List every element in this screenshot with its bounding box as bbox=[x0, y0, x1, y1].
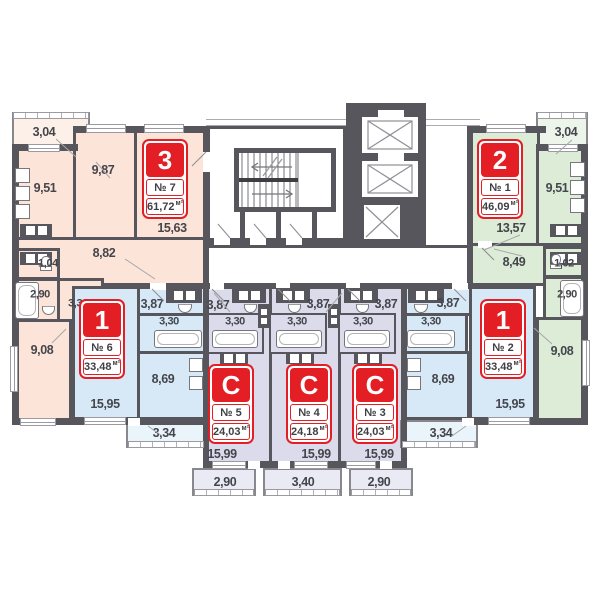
kitchen-counter-icon bbox=[407, 358, 421, 372]
area-label: 3,87 bbox=[437, 297, 460, 310]
window bbox=[294, 461, 328, 469]
area-label: 15,99 bbox=[301, 448, 330, 461]
elevator-shaft-2 bbox=[362, 161, 418, 197]
unit-badge-3: С № 3 24,03м² bbox=[352, 364, 398, 444]
unit-number: № 4 bbox=[290, 404, 328, 421]
unit-area-value: 24,03 bbox=[213, 426, 241, 438]
bathtub-icon bbox=[154, 330, 202, 348]
area-label: 3,40 bbox=[292, 476, 315, 489]
area-label: 3,04 bbox=[555, 126, 578, 139]
kitchen-counter-icon bbox=[189, 358, 203, 372]
vestibule-divider bbox=[312, 212, 317, 238]
balcony-glazing bbox=[351, 489, 411, 496]
unit-badge-1: 2 № 1 46,09м² bbox=[477, 139, 523, 219]
area-label: 3,30 bbox=[353, 317, 373, 328]
washer-icon bbox=[220, 352, 248, 364]
unit-badge-4: С № 4 24,18м² bbox=[286, 364, 332, 444]
area-label: 8,82 bbox=[93, 247, 116, 260]
area-label: 3,34 bbox=[153, 427, 176, 440]
window bbox=[28, 144, 60, 152]
area-label: 3,87 bbox=[307, 298, 330, 311]
elevator-shaft-3 bbox=[364, 205, 400, 239]
vestibule-divider bbox=[240, 212, 245, 238]
window bbox=[212, 461, 246, 469]
stove-icon bbox=[570, 198, 585, 213]
door-gap bbox=[214, 238, 230, 245]
bathtub-icon bbox=[276, 330, 322, 348]
unit-area-unit: м² bbox=[176, 200, 184, 207]
kitchen-sink-icon bbox=[570, 162, 585, 177]
balcony-glazing bbox=[128, 441, 204, 448]
window bbox=[84, 417, 126, 425]
balcony-door-gap bbox=[278, 461, 290, 469]
wardrobe-icon bbox=[276, 288, 310, 303]
balcony-glazing bbox=[537, 112, 587, 119]
studio5-entrance-gap bbox=[210, 283, 224, 290]
apt1-entrance-gap bbox=[478, 241, 492, 248]
balcony-door-gap bbox=[248, 461, 260, 469]
area-label: 15,99 bbox=[207, 448, 236, 461]
area-label: 8,69 bbox=[152, 373, 175, 386]
door-gap bbox=[250, 238, 266, 245]
unit-area: 33,48м² bbox=[83, 358, 121, 375]
unit-badge-2: 1 № 2 33,48м² bbox=[480, 299, 526, 379]
unit-type: 3 bbox=[146, 143, 184, 177]
cabinet-icon bbox=[550, 224, 582, 237]
area-label: 9,51 bbox=[34, 182, 57, 195]
door-gap bbox=[286, 238, 302, 245]
area-label: 3,30 bbox=[225, 317, 245, 328]
unit-area-value: 24,18 bbox=[291, 426, 319, 438]
area-label: 1,02 bbox=[554, 259, 574, 270]
area-label: 15,99 bbox=[364, 448, 393, 461]
apt2-entrance-gap bbox=[452, 283, 468, 290]
window bbox=[86, 124, 126, 133]
unit-area-value: 24,03 bbox=[357, 426, 385, 438]
unit-type: 2 bbox=[481, 143, 519, 177]
area-label: 3,30 bbox=[421, 317, 441, 328]
unit-area: 61,72м² bbox=[146, 198, 184, 215]
unit-area-unit: м² bbox=[514, 360, 522, 367]
cabinet-icon bbox=[20, 224, 52, 237]
unit-area: 24,03м² bbox=[356, 423, 394, 440]
canopy-edge-right bbox=[426, 119, 480, 126]
unit-area-unit: м² bbox=[242, 425, 250, 432]
unit-area-unit: м² bbox=[511, 200, 519, 207]
balcony-glazing bbox=[13, 112, 89, 119]
area-label: 2,90 bbox=[214, 476, 237, 489]
washer-icon bbox=[354, 352, 382, 364]
area-label: 2,90 bbox=[368, 476, 391, 489]
area-label: 9,87 bbox=[92, 164, 115, 177]
window bbox=[20, 418, 56, 426]
room-908-left bbox=[12, 319, 72, 425]
stove-icon bbox=[407, 376, 421, 390]
apt7-entrance-gap bbox=[203, 152, 210, 172]
window bbox=[346, 461, 376, 469]
balcony-glazing bbox=[265, 489, 340, 496]
area-label: 3,87 bbox=[207, 299, 230, 312]
unit-area-value: 61,72 bbox=[147, 201, 175, 213]
area-label: 9,08 bbox=[31, 344, 54, 357]
balcony-door-gap bbox=[128, 418, 140, 426]
area-label: 15,95 bbox=[495, 398, 524, 411]
unit-badge-7: 3 № 7 61,72м² bbox=[142, 139, 188, 219]
elevator-door-gap bbox=[378, 153, 404, 161]
party-wall bbox=[467, 126, 473, 246]
unit-area: 33,48м² bbox=[484, 358, 522, 375]
window bbox=[486, 124, 526, 133]
area-label: 3,87 bbox=[141, 298, 164, 311]
balcony-door-gap bbox=[462, 418, 474, 426]
area-label: 2,90 bbox=[30, 290, 50, 301]
stove-icon bbox=[189, 376, 203, 390]
area-label: 3,34 bbox=[430, 427, 453, 440]
balcony-glazing bbox=[402, 441, 476, 448]
unit-area-unit: м² bbox=[386, 425, 394, 432]
area-label: 9,51 bbox=[546, 182, 569, 195]
unit-number: № 3 bbox=[356, 404, 394, 421]
area-label: 3,04 bbox=[33, 126, 56, 139]
unit-type: 1 bbox=[83, 303, 121, 337]
window bbox=[10, 346, 18, 392]
unit-area-value: 33,48 bbox=[84, 361, 112, 373]
area-label: 8,69 bbox=[432, 373, 455, 386]
unit-number: № 2 bbox=[484, 339, 522, 356]
unit-area-value: 33,48 bbox=[485, 361, 513, 373]
window bbox=[582, 340, 590, 386]
washer-icon bbox=[286, 352, 314, 364]
unit-number: № 7 bbox=[146, 179, 184, 196]
unit-number: № 6 bbox=[83, 339, 121, 356]
area-label: 3,30 bbox=[159, 317, 179, 328]
riser-shaft bbox=[328, 304, 340, 328]
unit-area: 24,18м² bbox=[290, 423, 328, 440]
apt6-entrance-gap bbox=[150, 283, 166, 290]
window bbox=[488, 417, 530, 425]
unit-area: 24,03м² bbox=[212, 423, 250, 440]
unit-badge-5: С № 5 24,03м² bbox=[208, 364, 254, 444]
kitchen-counter-icon bbox=[15, 186, 30, 201]
balcony-door-gap bbox=[380, 461, 392, 469]
wardrobe-icon bbox=[344, 288, 378, 303]
unit-type: С bbox=[356, 368, 394, 402]
balcony-glazing bbox=[194, 489, 254, 496]
unit-area: 46,09м² bbox=[481, 198, 519, 215]
elevator-door-gap bbox=[378, 110, 404, 117]
area-label: 9,08 bbox=[551, 345, 574, 358]
wardrobe-icon bbox=[166, 288, 202, 303]
area-label: 2,90 bbox=[557, 290, 577, 301]
room-987 bbox=[73, 126, 137, 240]
unit-type: С bbox=[290, 368, 328, 402]
unit-area-value: 46,09 bbox=[482, 201, 510, 213]
area-label: 13,57 bbox=[496, 222, 525, 235]
party-wall bbox=[203, 126, 210, 245]
unit-badge-6: 1 № 6 33,48м² bbox=[79, 299, 125, 379]
kitchen-counter-icon bbox=[570, 180, 585, 195]
unit-area-unit: м² bbox=[113, 360, 121, 367]
unit-type: С bbox=[212, 368, 250, 402]
area-label: 3,30 bbox=[287, 317, 307, 328]
window bbox=[548, 144, 578, 152]
area-label: 15,95 bbox=[90, 398, 119, 411]
bathtub-icon bbox=[344, 330, 390, 348]
window bbox=[144, 124, 184, 133]
area-label: 15,63 bbox=[157, 222, 186, 235]
elevator-shaft-1 bbox=[362, 117, 418, 153]
area-label: 3,87 bbox=[375, 298, 398, 311]
kitchen-sink-icon bbox=[15, 168, 30, 183]
vestibule-divider bbox=[276, 212, 281, 238]
stair-flight-box bbox=[234, 148, 336, 212]
unit-number: № 5 bbox=[212, 404, 250, 421]
unit-area-unit: м² bbox=[320, 425, 328, 432]
unit-number: № 1 bbox=[481, 179, 519, 196]
stove-icon bbox=[15, 204, 30, 219]
area-label: 1,04 bbox=[38, 259, 58, 270]
unit-type: 1 bbox=[484, 303, 522, 337]
wardrobe-icon bbox=[232, 288, 266, 303]
canopy-edge-left bbox=[206, 119, 346, 126]
corridor bbox=[206, 245, 470, 286]
bathtub-icon bbox=[407, 330, 455, 348]
riser-shaft bbox=[258, 304, 270, 328]
bathtub-icon bbox=[212, 330, 258, 348]
floor-plan: 3,04 9,87 9,51 15,63 8,82 1,04 2,90 3,36… bbox=[0, 0, 600, 600]
area-label: 8,49 bbox=[503, 256, 526, 269]
